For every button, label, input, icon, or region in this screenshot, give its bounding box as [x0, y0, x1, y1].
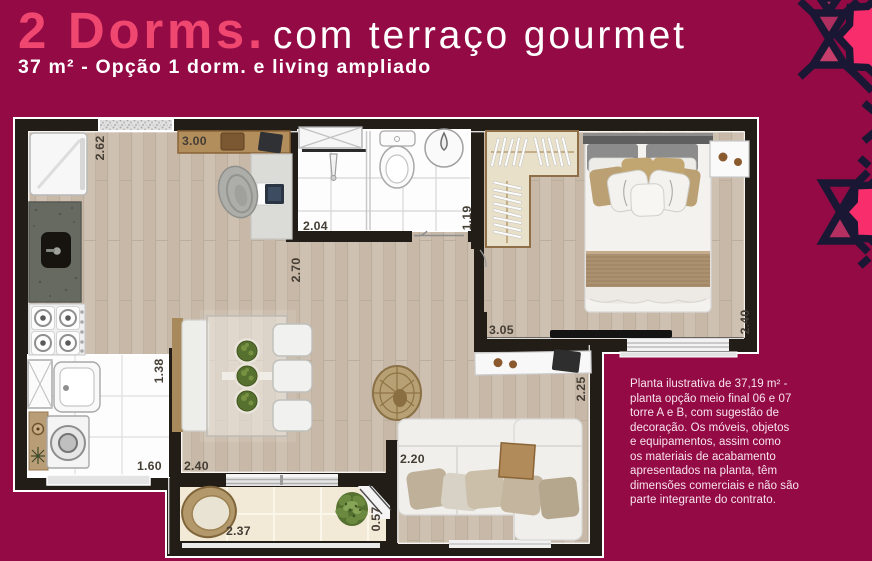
svg-text:1.19: 1.19 [460, 206, 474, 231]
svg-text:2.37: 2.37 [226, 524, 251, 538]
svg-text:3.05: 3.05 [489, 323, 514, 337]
svg-text:3.00: 3.00 [182, 134, 207, 148]
svg-text:2.20: 2.20 [400, 452, 425, 466]
svg-text:1.38: 1.38 [152, 359, 166, 384]
svg-text:1.60: 1.60 [137, 459, 162, 473]
svg-text:2.62: 2.62 [93, 136, 107, 161]
svg-text:2.70: 2.70 [289, 258, 303, 283]
svg-text:0.57: 0.57 [369, 507, 383, 532]
svg-text:2.04: 2.04 [303, 219, 328, 233]
svg-text:2.25: 2.25 [574, 377, 588, 402]
svg-text:2.40: 2.40 [184, 459, 209, 473]
svg-text:2.40: 2.40 [738, 310, 752, 335]
